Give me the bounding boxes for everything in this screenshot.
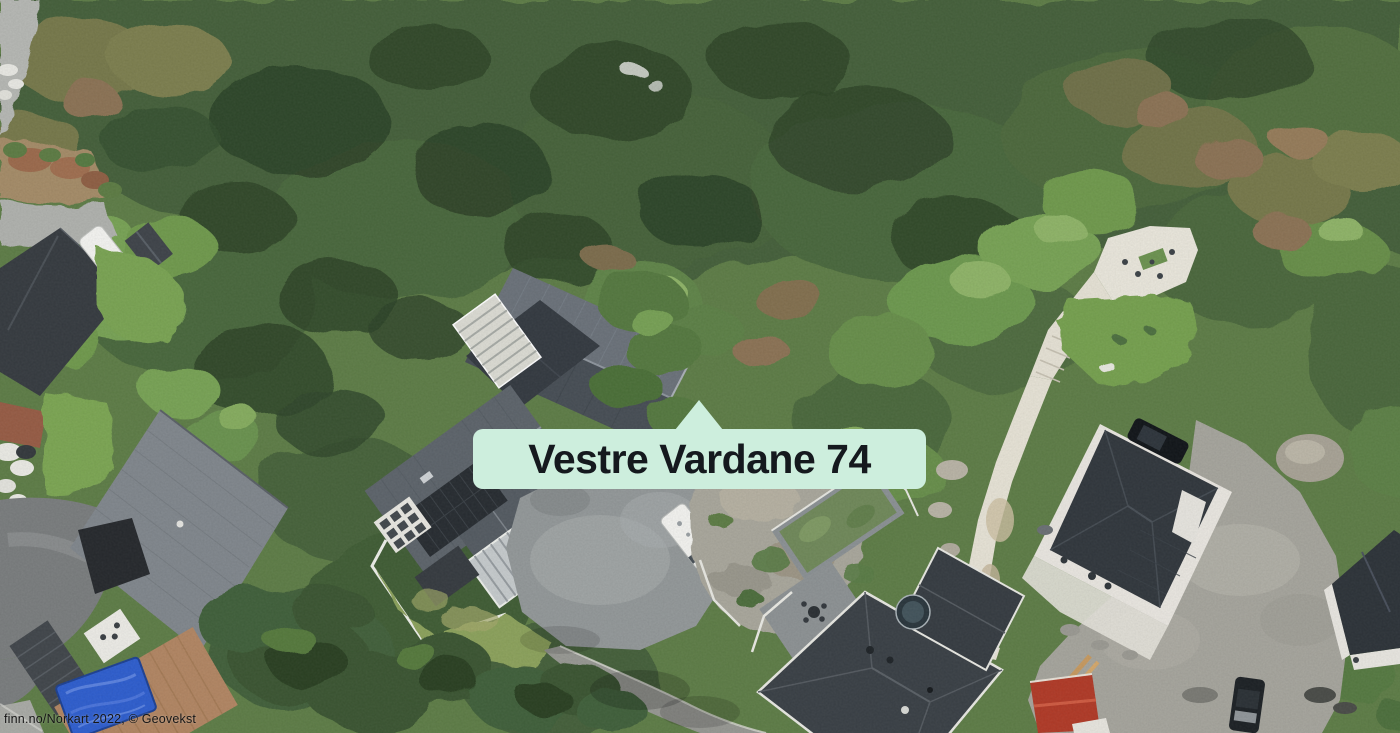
aerial-map-canvas[interactable] <box>0 0 1400 733</box>
grain-overlay-light <box>0 0 1400 733</box>
map-attribution: finn.no/Norkart 2022, © Geovekst <box>4 712 196 726</box>
map-viewport: Vestre Vardane 74 finn.no/Norkart 2022, … <box>0 0 1400 733</box>
address-callout: Vestre Vardane 74 <box>473 429 926 489</box>
address-callout-label: Vestre Vardane 74 <box>528 436 871 483</box>
